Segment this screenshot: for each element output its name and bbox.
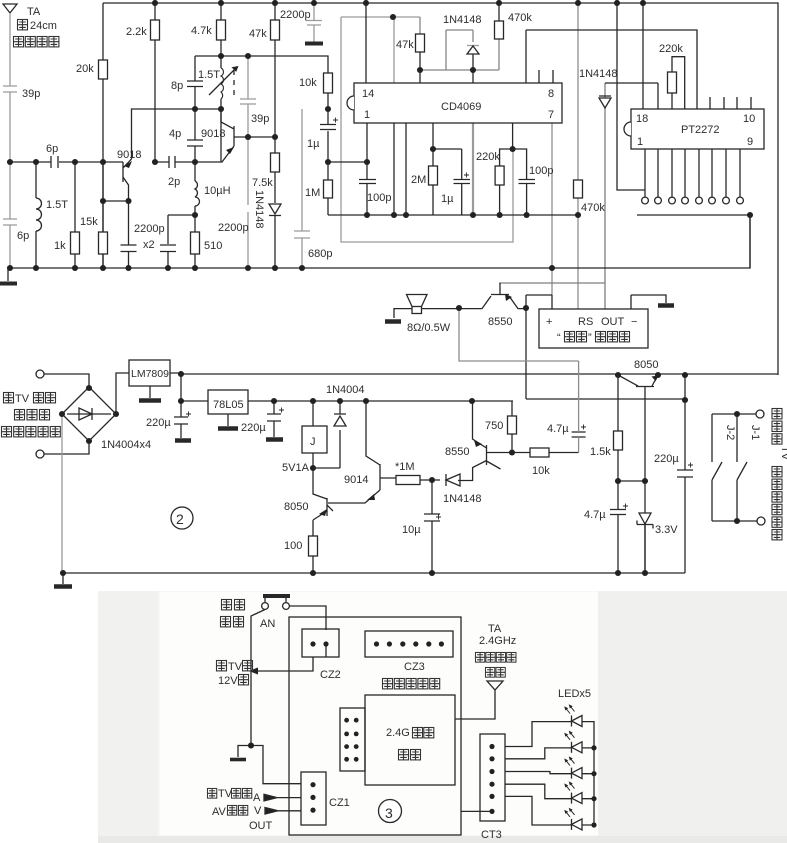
svg-text:8p: 8p bbox=[171, 80, 183, 92]
svg-text:CT3: CT3 bbox=[481, 829, 502, 841]
svg-text:220µ: 220µ bbox=[241, 422, 266, 434]
svg-text:4.7µ: 4.7µ bbox=[547, 423, 569, 435]
svg-text:1: 1 bbox=[364, 109, 370, 121]
svg-text:1µ: 1µ bbox=[441, 193, 454, 205]
svg-text:J-2: J-2 bbox=[724, 425, 736, 440]
svg-text:10: 10 bbox=[743, 113, 755, 125]
svg-text:7.5k: 7.5k bbox=[252, 177, 273, 189]
svg-text:8050: 8050 bbox=[284, 501, 308, 513]
svg-text:6p: 6p bbox=[17, 230, 29, 242]
svg-text:1N4004x4: 1N4004x4 bbox=[101, 439, 151, 451]
svg-text:−: − bbox=[631, 316, 637, 328]
svg-text:“: “ bbox=[557, 332, 561, 344]
svg-text:AN: AN bbox=[260, 618, 275, 630]
svg-text:510: 510 bbox=[204, 240, 222, 252]
svg-text:LEDx5: LEDx5 bbox=[558, 688, 591, 700]
svg-text:10µH: 10µH bbox=[204, 185, 231, 197]
svg-text:750: 750 bbox=[485, 420, 503, 432]
svg-text:3: 3 bbox=[385, 805, 393, 821]
svg-text:PT2272: PT2272 bbox=[681, 124, 720, 136]
svg-text:TA: TA bbox=[27, 6, 41, 18]
svg-text:2200p: 2200p bbox=[134, 223, 165, 235]
svg-text:”: ” bbox=[588, 332, 592, 344]
svg-text:10µ: 10µ bbox=[402, 524, 421, 536]
svg-text:2p: 2p bbox=[168, 176, 180, 188]
svg-text:15k: 15k bbox=[80, 216, 98, 228]
svg-text:x2: x2 bbox=[143, 239, 155, 251]
svg-text:2.4G: 2.4G bbox=[386, 727, 410, 739]
svg-text:4.7µ: 4.7µ bbox=[584, 509, 606, 521]
svg-text:TA: TA bbox=[488, 623, 502, 635]
svg-text:A: A bbox=[253, 792, 261, 804]
svg-text:TV: TV bbox=[228, 661, 243, 673]
svg-text:1N4148: 1N4148 bbox=[443, 493, 482, 505]
svg-text:470k: 470k bbox=[581, 202, 605, 214]
svg-text:5V1A: 5V1A bbox=[282, 462, 310, 474]
svg-text:24cm: 24cm bbox=[30, 20, 57, 32]
svg-text:2M: 2M bbox=[411, 174, 426, 186]
svg-text:6p: 6p bbox=[46, 143, 58, 155]
svg-text:12V: 12V bbox=[218, 675, 238, 687]
svg-text:1M: 1M bbox=[305, 187, 320, 199]
svg-text:7: 7 bbox=[548, 109, 554, 121]
svg-text:2.2k: 2.2k bbox=[126, 26, 147, 38]
svg-text:10k: 10k bbox=[299, 77, 317, 89]
svg-text:9: 9 bbox=[747, 136, 753, 148]
svg-text:1.5k: 1.5k bbox=[590, 446, 611, 458]
svg-text:100p: 100p bbox=[367, 192, 391, 204]
svg-text:9018: 9018 bbox=[117, 149, 141, 161]
svg-text:100p: 100p bbox=[529, 165, 553, 177]
svg-text:RS: RS bbox=[578, 316, 593, 328]
svg-text:8: 8 bbox=[548, 88, 554, 100]
svg-text:1N4004: 1N4004 bbox=[326, 384, 365, 396]
svg-text:39p: 39p bbox=[22, 88, 40, 100]
svg-text:470k: 470k bbox=[508, 12, 532, 24]
svg-text:9018: 9018 bbox=[201, 128, 225, 140]
svg-text:+: + bbox=[546, 316, 552, 328]
svg-text:1N4148: 1N4148 bbox=[443, 14, 482, 26]
svg-text:1N4148: 1N4148 bbox=[253, 190, 265, 229]
svg-text:220µ: 220µ bbox=[654, 453, 679, 465]
svg-text:TV: TV bbox=[15, 393, 30, 405]
svg-text:4.7k: 4.7k bbox=[191, 25, 212, 37]
svg-text:TV: TV bbox=[218, 788, 233, 800]
svg-text:47k: 47k bbox=[396, 39, 414, 51]
svg-text:AV: AV bbox=[212, 806, 227, 818]
svg-text:8550: 8550 bbox=[488, 316, 512, 328]
svg-text:CD4069: CD4069 bbox=[441, 101, 481, 113]
svg-text:CZ1: CZ1 bbox=[329, 797, 350, 809]
svg-text:V: V bbox=[254, 805, 262, 817]
svg-text:8550: 8550 bbox=[445, 446, 469, 458]
svg-text:220µ: 220µ bbox=[146, 417, 171, 429]
svg-text:J-1: J-1 bbox=[749, 425, 761, 440]
svg-text:78L05: 78L05 bbox=[213, 399, 244, 411]
svg-text:1.5T: 1.5T bbox=[198, 69, 220, 81]
svg-text:10k: 10k bbox=[532, 465, 550, 477]
svg-text:8050: 8050 bbox=[634, 359, 658, 371]
svg-text:1k: 1k bbox=[54, 240, 66, 252]
svg-text:39p: 39p bbox=[251, 113, 269, 125]
svg-text:LM7809: LM7809 bbox=[131, 368, 169, 380]
svg-text:18: 18 bbox=[636, 113, 648, 125]
svg-text:CZ2: CZ2 bbox=[320, 669, 341, 681]
svg-text:2.4GHz: 2.4GHz bbox=[479, 635, 516, 647]
svg-text:2200p: 2200p bbox=[280, 9, 311, 21]
svg-text:20k: 20k bbox=[76, 63, 94, 75]
svg-text:8Ω/0.5W: 8Ω/0.5W bbox=[407, 322, 451, 334]
svg-text:3.3V: 3.3V bbox=[655, 524, 678, 536]
svg-text:OUT: OUT bbox=[601, 316, 625, 328]
svg-text:J: J bbox=[310, 436, 316, 448]
svg-text:14: 14 bbox=[362, 88, 374, 100]
svg-text:2: 2 bbox=[176, 511, 184, 527]
svg-text:9014: 9014 bbox=[344, 474, 368, 486]
svg-text:OUT: OUT bbox=[249, 820, 273, 832]
svg-text:CZ3: CZ3 bbox=[404, 661, 425, 673]
svg-text:680p: 680p bbox=[308, 248, 332, 260]
svg-text:*1M: *1M bbox=[395, 461, 415, 473]
svg-text:220k: 220k bbox=[659, 43, 683, 55]
svg-text:4p: 4p bbox=[169, 128, 181, 140]
svg-text:2200p: 2200p bbox=[218, 222, 249, 234]
svg-text:47k: 47k bbox=[249, 28, 267, 40]
svg-text:220k: 220k bbox=[476, 151, 500, 163]
svg-text:1N4148: 1N4148 bbox=[579, 68, 618, 80]
svg-text:1µ: 1µ bbox=[307, 138, 320, 150]
svg-text:1: 1 bbox=[637, 136, 643, 148]
svg-text:TV: TV bbox=[779, 446, 787, 461]
svg-text:1.5T: 1.5T bbox=[46, 199, 68, 211]
svg-text:100: 100 bbox=[284, 540, 302, 552]
